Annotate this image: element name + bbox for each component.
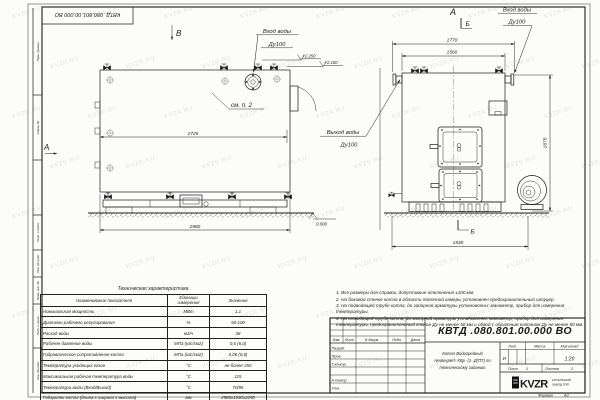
door-swing-arc bbox=[298, 87, 316, 111]
spec-cell-name: Максимальная рабочая температура воды bbox=[41, 371, 168, 382]
dim-overall-length: 2980 bbox=[189, 224, 201, 230]
spec-cell-units: МВт bbox=[168, 306, 210, 317]
elev-mid: +2.100 bbox=[325, 60, 339, 65]
product-name-3: техническому заданию bbox=[440, 365, 487, 370]
spec-cell-units: МПа (кгс/см2) bbox=[168, 339, 210, 350]
spec-row: Температура воды (Вход/Выход)°С70/95 bbox=[41, 382, 267, 393]
sheets-value: 2 bbox=[570, 367, 574, 371]
spec-row: Габариты котла (длина х ширина х высота)… bbox=[41, 393, 267, 400]
inlet-dn-label: Ду100 bbox=[268, 42, 286, 48]
spec-row: Температура уходящих газов°Сне более 250 bbox=[41, 360, 267, 371]
spec-table-title: Техническая характеристика bbox=[40, 286, 266, 292]
spec-row: Гидравлическое сопротивление котлаМПа (к… bbox=[41, 349, 267, 360]
col-data: Дата bbox=[410, 338, 420, 342]
margin-label: Инв. № дубл. bbox=[36, 254, 40, 273]
sheet-label: Лист bbox=[507, 367, 518, 371]
spec-cell-units: °С bbox=[168, 360, 210, 371]
col-izm: Изм. bbox=[333, 338, 341, 342]
sign-tkontr: Т.контр. bbox=[332, 362, 347, 366]
note-4: 4. На отводящей трубе котла, до запорной… bbox=[336, 316, 586, 328]
outlet-dn-label: Ду100 bbox=[340, 143, 358, 149]
spec-row: Расход водым3/ч38 bbox=[41, 328, 267, 339]
spec-cell-units: °С bbox=[168, 382, 210, 393]
drawing-sheet: KVZR.RUKVZR.RUKVZR.RUKVZR.RUKVZR.RUKVZR.… bbox=[0, 0, 600, 400]
format-value: А3 bbox=[563, 394, 570, 398]
dim-width: 1930 bbox=[453, 240, 464, 246]
dim-inner-width: 2725 bbox=[187, 131, 199, 137]
sign-utv: Утв. bbox=[332, 386, 341, 390]
note-2: 2. На боковой стенке котла в области топ… bbox=[336, 297, 586, 303]
front-inlet-label: Вход воды bbox=[503, 8, 532, 14]
furnace-door-upper bbox=[430, 127, 482, 167]
lit-header: Лит. bbox=[507, 344, 517, 348]
spec-cell-units: °С bbox=[168, 371, 210, 382]
spec-cell-value: 0,6 (6,0) bbox=[210, 339, 267, 350]
furnace-door-lower bbox=[431, 169, 482, 202]
spec-header-value: Значение bbox=[210, 294, 267, 306]
note-ref: см. п. 2 bbox=[231, 102, 253, 109]
dim-body-width: 1560 bbox=[447, 50, 458, 56]
kvzr-logo: KVZR КОТЕЛЬНЫЙ ЗАВОД РЭП bbox=[512, 377, 571, 391]
col-list: Лист bbox=[344, 338, 354, 342]
dim-flange-span: 1770 bbox=[447, 38, 458, 44]
view-label-b: В bbox=[176, 29, 182, 38]
kvzr-logo-text: KVZR bbox=[520, 379, 548, 391]
col-podp: Подп. bbox=[392, 338, 402, 342]
front-inlet-dn-label: Ду100 bbox=[508, 20, 526, 26]
spec-row: Номинальная мощностьМВт1,1 bbox=[41, 306, 267, 317]
spec-cell-value: 115 bbox=[210, 371, 267, 382]
spec-header-name: Наименование показателя bbox=[41, 294, 168, 306]
note-1: 1. Все размеры для справок, допустимые о… bbox=[336, 290, 586, 296]
spec-cell-name: Габариты котла (длина х ширина х высота) bbox=[41, 393, 168, 400]
front-view: 1770 1560 1875 1930 Б Б А Вход воды Ду10 bbox=[384, 7, 553, 250]
section-label-top: Б bbox=[466, 21, 470, 28]
kvzr-logo-sub-1: КОТЕЛЬНЫЙ bbox=[552, 378, 571, 382]
spec-header-row: Наименование показателя Единицы измерени… bbox=[41, 294, 267, 306]
sign-nkontr: Н.контр. bbox=[332, 378, 348, 382]
spec-row: Максимальная рабочая температура воды°С1… bbox=[41, 371, 267, 382]
elev-top: +2.250 bbox=[303, 54, 317, 59]
spec-cell-value: 38 bbox=[210, 328, 267, 339]
spec-cell-name: Температура воды (Вход/Выход) bbox=[41, 382, 168, 393]
sign-prov: Пров. bbox=[332, 354, 342, 358]
stamp-doc-number: КВТД .080.801.00.000 ВО bbox=[54, 11, 120, 17]
spec-cell-name: Номинальная мощность bbox=[41, 306, 168, 317]
spec-header-units: Единицы измерения bbox=[168, 294, 210, 306]
sheet-value: 1 bbox=[526, 367, 528, 371]
title-block: КВТД .080.801.00.000 ВО Изм. Лист N доку… bbox=[330, 318, 585, 398]
view-label-a-left: А bbox=[43, 143, 49, 152]
spec-row: Диапазон рабочего регулирования%50-100 bbox=[41, 317, 267, 328]
sheets-label: Листов bbox=[544, 367, 559, 371]
view-label-a: А bbox=[449, 7, 456, 17]
blower-fan bbox=[518, 176, 547, 210]
spec-cell-name: Рабочее давление воды bbox=[41, 339, 168, 350]
dim-height: 1875 bbox=[543, 137, 549, 148]
product-name-2: Heatexpert- КВр -(1- Д/ПТ) по bbox=[434, 358, 491, 363]
spec-cell-value: 0,06 (0,6) bbox=[210, 349, 267, 360]
scale-header: Масштаб bbox=[561, 344, 580, 348]
top-left-stamp: КВТД .080.801.00.000 ВО bbox=[42, 7, 133, 24]
note-3: 3. На подводящей трубе котла, до запорно… bbox=[336, 303, 586, 315]
spec-cell-units: мм bbox=[168, 393, 210, 400]
spec-cell-name: Температура уходящих газов bbox=[41, 360, 168, 371]
spec-row: Рабочее давление водыМПа (кгс/см2)0,6 (6… bbox=[41, 339, 267, 350]
margin-label: Перв. примен. bbox=[36, 41, 40, 61]
spec-cell-units: МПа (кгс/см2) bbox=[168, 349, 210, 360]
format-label: Формат bbox=[538, 394, 553, 398]
mass-header: Масса bbox=[534, 344, 545, 348]
technical-notes: 1. Все размеры для справок, допустимые о… bbox=[336, 290, 586, 329]
kvzr-logo-sub-2: ЗАВОД РЭП bbox=[552, 383, 569, 387]
spec-cell-value: 1,1 bbox=[210, 306, 267, 317]
spec-cell-value: 2980х1930х2250 bbox=[210, 393, 267, 400]
inlet-flange bbox=[245, 74, 261, 90]
side-view: 2725 2980 0.000 В А см. п. 2 Вход воды Д… bbox=[43, 25, 400, 233]
spec-cell-units: м3/ч bbox=[168, 328, 210, 339]
spec-cell-name: Гидравлическое сопротивление котла bbox=[41, 349, 168, 360]
sign-razrab: Разраб. bbox=[332, 346, 346, 350]
lit-value: И bbox=[503, 356, 507, 361]
scale-value: 1:20 bbox=[565, 357, 575, 363]
kvzr-logo-icon bbox=[512, 377, 519, 389]
inlet-label: Вход воды bbox=[263, 29, 292, 35]
spec-cell-value: 70/95 bbox=[210, 382, 267, 393]
margin-label: Подп. и дата bbox=[36, 223, 40, 242]
section-label-bottom: Б bbox=[471, 229, 475, 236]
col-dokum: N докум. bbox=[365, 338, 380, 342]
spec-cell-value: 50-100 bbox=[210, 317, 267, 328]
outlet-label: Выход воды bbox=[327, 130, 360, 136]
spec-cell-units: % bbox=[168, 317, 210, 328]
elev-zero: 0.000 bbox=[316, 222, 328, 227]
spec-cell-name: Диапазон рабочего регулирования bbox=[41, 317, 168, 328]
margin-label: Справ. № bbox=[36, 120, 40, 134]
spec-cell-name: Расход воды bbox=[41, 328, 168, 339]
product-name-1: Котел Водогрейный bbox=[442, 351, 483, 356]
spec-cell-value: не более 250 bbox=[210, 360, 267, 371]
spec-table: Техническая характеристика Наименование … bbox=[40, 286, 266, 400]
